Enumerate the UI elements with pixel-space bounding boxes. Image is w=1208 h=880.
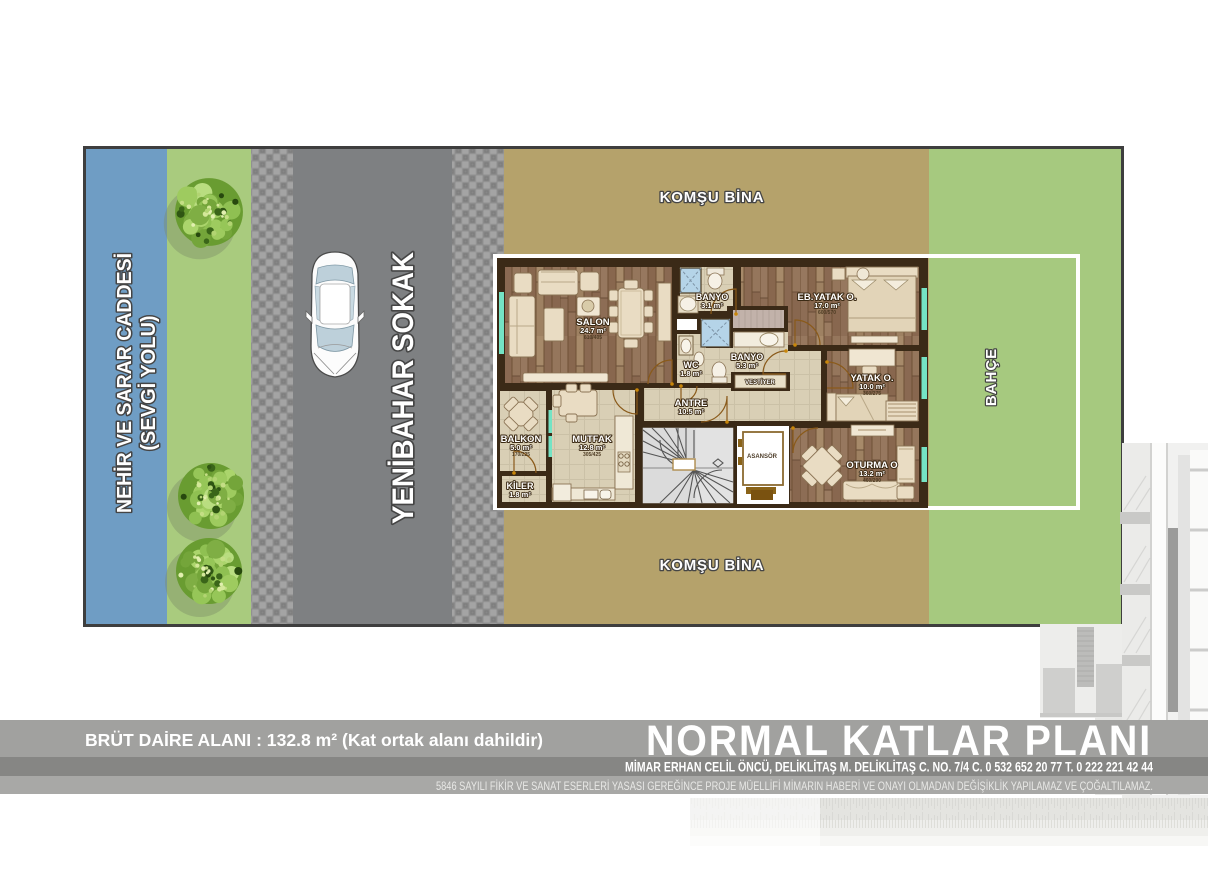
- svg-text:5.3 m²: 5.3 m²: [736, 361, 758, 370]
- svg-text:24.7 m²: 24.7 m²: [580, 326, 606, 335]
- svg-text:YENİBAHAR SOKAK: YENİBAHAR SOKAK: [387, 252, 420, 524]
- svg-text:1.8 m²: 1.8 m²: [680, 369, 702, 378]
- svg-text:600/570: 600/570: [818, 310, 836, 316]
- svg-text:(SEVGİ YOLU): (SEVGİ YOLU): [137, 315, 160, 450]
- svg-text:13.2 m²: 13.2 m²: [859, 469, 885, 478]
- svg-text:VESTİYER: VESTİYER: [745, 379, 775, 386]
- svg-text:BAHÇE: BAHÇE: [983, 348, 1000, 406]
- svg-text:17.0 m²: 17.0 m²: [814, 301, 840, 310]
- svg-text:KOMŞU BİNA: KOMŞU BİNA: [660, 189, 765, 206]
- svg-text:610/405: 610/405: [584, 335, 602, 341]
- svg-text:KOMŞU BİNA: KOMŞU BİNA: [660, 557, 765, 574]
- svg-text:MİMAR ERHAN CELİL ÖNCÜ, DELİK: MİMAR ERHAN CELİL ÖNCÜ, DELİKLİTAŞ M. DE…: [625, 759, 1153, 775]
- svg-text:5.0 m²: 5.0 m²: [510, 443, 532, 452]
- svg-text:460/290: 460/290: [863, 478, 881, 484]
- svg-text:10.5 m²: 10.5 m²: [678, 407, 704, 416]
- svg-text:170/225: 170/225: [512, 452, 530, 458]
- svg-text:10.0 m²: 10.0 m²: [859, 382, 885, 391]
- svg-text:ASANSÖR: ASANSÖR: [747, 453, 778, 460]
- svg-text:12.8 m²: 12.8 m²: [579, 443, 605, 452]
- svg-text:360/275: 360/275: [863, 391, 881, 397]
- svg-text:1.8 m²: 1.8 m²: [509, 490, 531, 499]
- svg-text:5846 SAYILI FİKİR VE SANAT ESE: 5846 SAYILI FİKİR VE SANAT ESERLERİ YASA…: [436, 780, 1153, 793]
- svg-text:BRÜT DAİRE ALANI : 132.8 m² (K: BRÜT DAİRE ALANI : 132.8 m² (Kat ortak a…: [85, 730, 543, 750]
- svg-text:3.1 m²: 3.1 m²: [701, 301, 723, 310]
- svg-text:NEHİR VE SARAR CADDESİ: NEHİR VE SARAR CADDESİ: [113, 253, 136, 513]
- svg-text:305/425: 305/425: [583, 452, 601, 458]
